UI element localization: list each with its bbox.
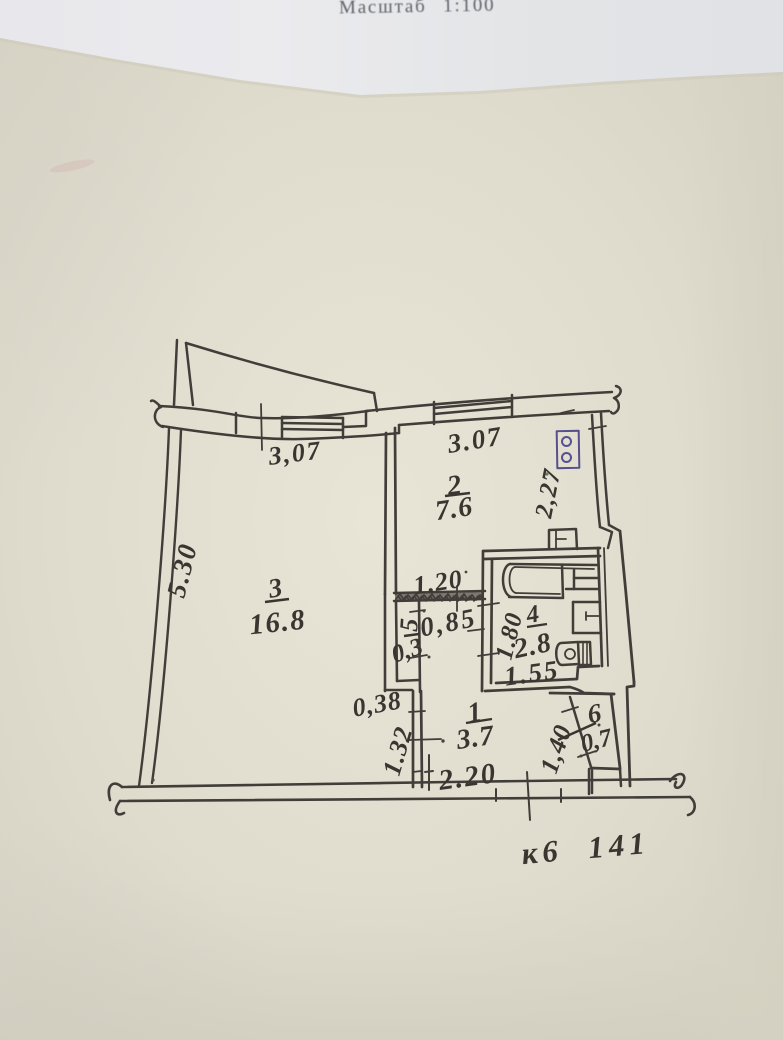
svg-text:3.7: 3.7 [454,720,497,756]
svg-text:5: 5 [394,617,424,632]
svg-text:16.8: 16.8 [248,604,308,642]
svg-text:7.6: 7.6 [433,491,475,527]
svg-text:Масштаб 1:100: Масштаб 1:100 [339,0,496,18]
